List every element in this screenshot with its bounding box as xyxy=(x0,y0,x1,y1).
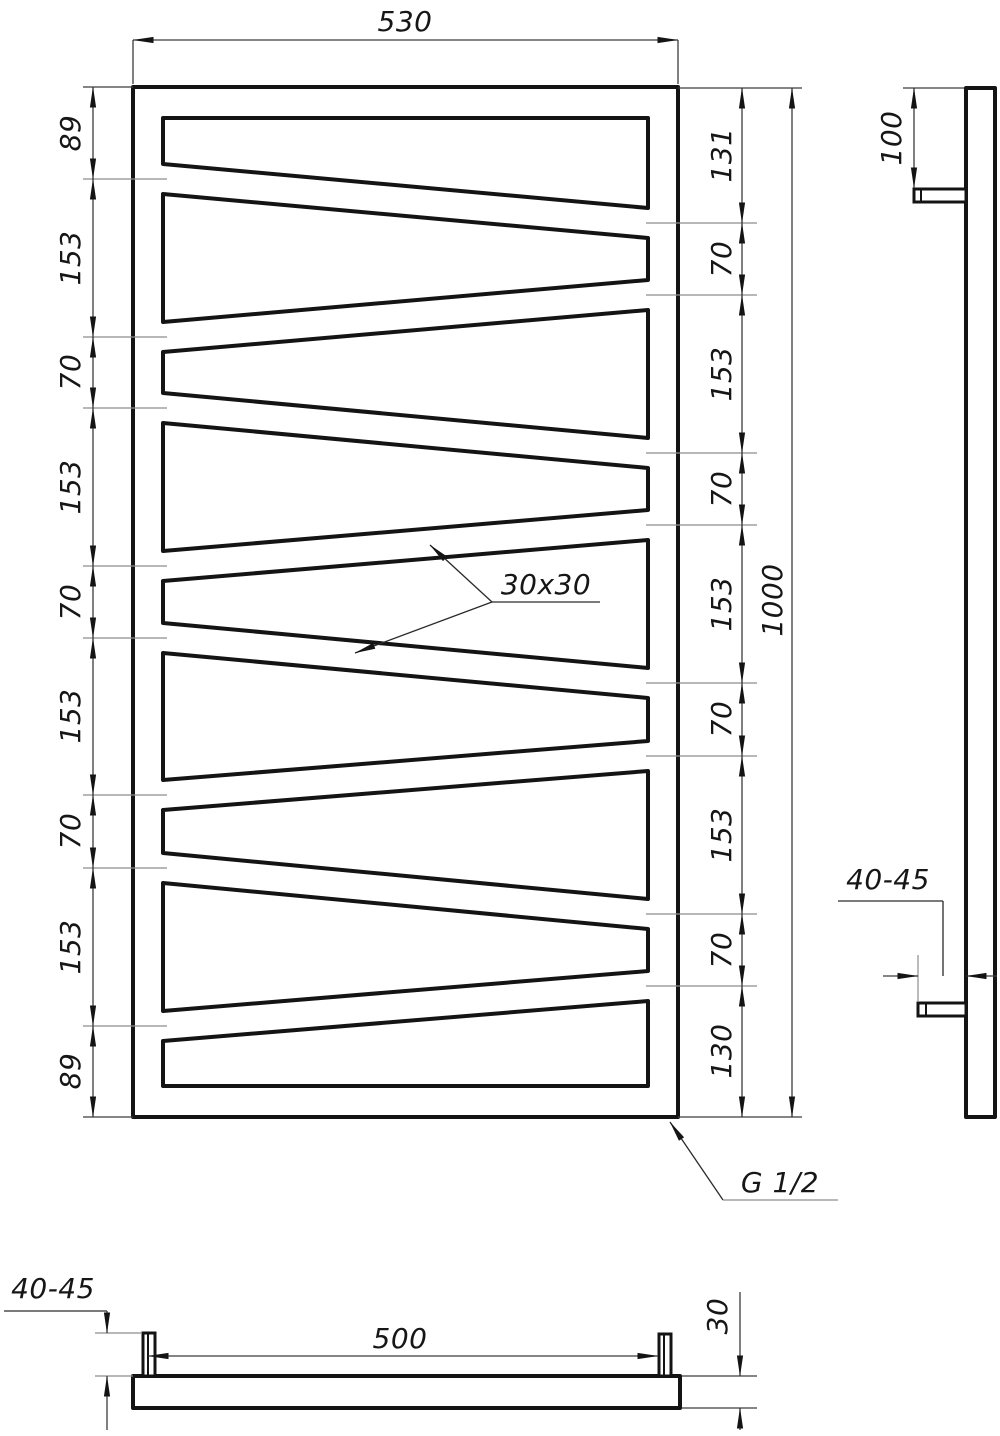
tube-section-label: 30x30 xyxy=(501,568,591,601)
leader-g12-arrow xyxy=(670,1122,723,1200)
left-chain-label-6: 70 xyxy=(54,813,87,850)
dim-label-100: 100 xyxy=(875,111,908,166)
left-chain-label-1: 153 xyxy=(54,231,87,286)
left-chain-label-7: 153 xyxy=(54,920,87,975)
dim-label-500: 500 xyxy=(373,1322,428,1355)
right-chain-label-6: 153 xyxy=(705,808,738,863)
right-chain-label-4: 153 xyxy=(705,577,738,632)
bottom-wall-distance-label: 40-45 xyxy=(11,1272,95,1305)
bottom-rail xyxy=(133,1376,680,1408)
left-chain-label-8: 89 xyxy=(54,1053,87,1090)
left-chain-label-0: 89 xyxy=(54,115,87,152)
side-view xyxy=(914,88,995,1117)
dim-label-30: 30 xyxy=(701,1298,734,1335)
right-chain-label-8: 130 xyxy=(705,1024,738,1079)
left-chain-label-5: 153 xyxy=(54,689,87,744)
right-chain-label-7: 70 xyxy=(705,932,738,969)
thread-label: G 1/2 xyxy=(741,1166,819,1199)
right-chain-label-5: 70 xyxy=(705,701,738,738)
left-chain-label-3: 153 xyxy=(54,460,87,515)
technical-drawing: 530 89 153 70 153 70 153 70 153 89 xyxy=(0,0,1000,1436)
right-chain-label-3: 70 xyxy=(705,471,738,508)
dim-label-530: 530 xyxy=(378,5,433,38)
right-chain-label-1: 70 xyxy=(705,241,738,278)
right-chain-label-0: 131 xyxy=(705,128,738,183)
side-panel xyxy=(966,88,995,1117)
drawing-page: 530 89 153 70 153 70 153 70 153 89 xyxy=(0,0,1000,1436)
left-chain-label-2: 70 xyxy=(54,354,87,391)
side-wall-distance-label: 40-45 xyxy=(846,863,930,896)
left-chain-label-4: 70 xyxy=(54,584,87,621)
dim-label-1000: 1000 xyxy=(756,563,789,636)
right-chain-label-2: 153 xyxy=(705,347,738,402)
